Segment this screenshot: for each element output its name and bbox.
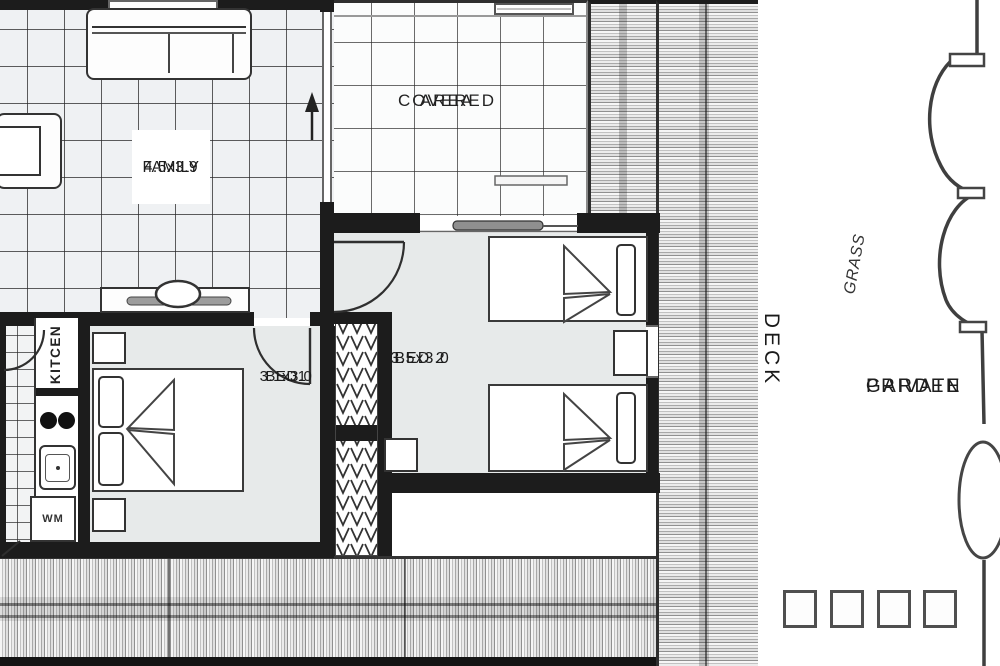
double-bed xyxy=(92,368,244,492)
wall-segment xyxy=(0,542,334,558)
room-name: FAMILY xyxy=(143,158,200,177)
tv-unit xyxy=(100,287,250,313)
sofa-armrest-line xyxy=(232,34,234,73)
bed2-floor xyxy=(334,233,392,318)
pillow xyxy=(616,244,636,316)
armchair xyxy=(0,113,62,189)
wall-segment xyxy=(577,213,660,233)
washing-machine: WM xyxy=(30,496,76,542)
pillow xyxy=(98,432,124,486)
sofa-back-line xyxy=(92,26,246,28)
single-bed xyxy=(488,384,648,472)
front-deck xyxy=(0,556,656,666)
cooktop-burner-icon xyxy=(58,412,75,429)
sink-drain xyxy=(56,466,60,470)
room-name: BED 2 xyxy=(394,348,445,369)
kitchen-label: KITCEN xyxy=(30,316,82,392)
deck-joint-line xyxy=(0,603,656,606)
deck-board-shadow xyxy=(699,4,709,666)
sliding-door-panel xyxy=(453,221,543,230)
cooktop-burner-icon xyxy=(40,412,57,429)
sink-icon xyxy=(39,445,76,490)
nightstand xyxy=(92,498,126,532)
bed1-label: 3.1x3.0 BED1 xyxy=(243,356,329,398)
side-deck xyxy=(656,0,758,666)
wall-segment xyxy=(334,312,392,324)
nightstand xyxy=(384,438,418,472)
entry-path xyxy=(392,493,656,556)
stepping-stone xyxy=(923,590,957,628)
label-line: COVERED xyxy=(398,91,496,111)
wall-segment xyxy=(334,213,420,233)
bed2-label: 3.5x3.0 BED 2 xyxy=(356,336,484,380)
sofa xyxy=(86,8,252,80)
wall-segment xyxy=(320,202,334,326)
private-garden-label: PRIVATE GARDEN xyxy=(852,364,976,410)
stepping-stone xyxy=(877,590,911,628)
family-room-label: 4.5x3.9 FAMILY xyxy=(132,130,210,204)
deck-board-joint xyxy=(705,4,707,666)
grass-label: GRASS xyxy=(824,226,888,302)
label-line: GARDEN xyxy=(866,376,962,398)
sofa-cushion-divider xyxy=(168,34,170,73)
floor-plan: WM xyxy=(0,0,1000,666)
pergola-beam-line xyxy=(334,15,586,17)
deck-board-shadow xyxy=(619,4,627,216)
armchair-seat xyxy=(0,126,41,176)
nightstand xyxy=(613,330,648,376)
stepping-stone xyxy=(783,590,817,628)
wall-segment xyxy=(378,473,660,493)
single-bed xyxy=(488,236,648,322)
nightstand xyxy=(92,332,126,364)
covered-deck xyxy=(588,0,656,216)
covered-area-label: AREA COVERED xyxy=(352,78,542,124)
pillow xyxy=(616,392,636,464)
label-line: KITCEN xyxy=(49,324,64,383)
label-line: DECK xyxy=(759,313,783,387)
room-name: BED1 xyxy=(265,367,306,387)
deck-label: DECK xyxy=(746,296,796,404)
wardrobe-divider-wall xyxy=(336,425,377,441)
pillow xyxy=(98,376,124,428)
window xyxy=(322,12,332,202)
wall-segment xyxy=(0,326,6,542)
wall-segment xyxy=(310,312,334,326)
label-line: GRASS xyxy=(842,232,870,295)
stepping-stone xyxy=(830,590,864,628)
deck-edge xyxy=(0,657,656,666)
wall-segment xyxy=(320,0,334,12)
deck-joint-line xyxy=(0,615,656,618)
